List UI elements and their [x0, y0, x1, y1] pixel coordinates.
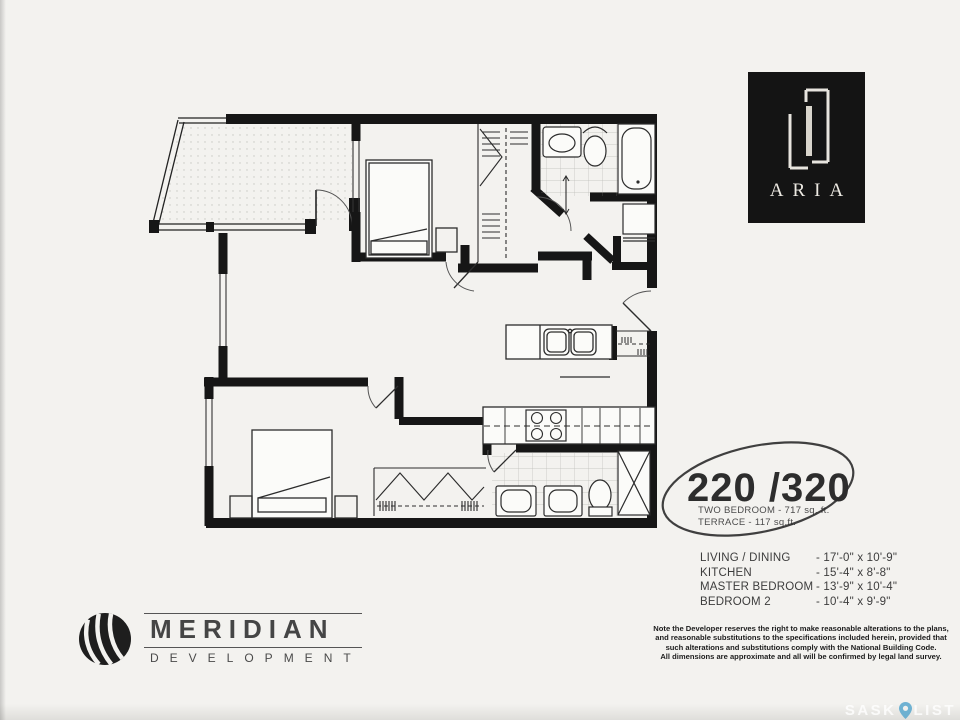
unit-terrace-line: TERRACE - 117 sq.ft. — [698, 517, 796, 528]
exterior-walls — [206, 114, 657, 528]
main-bathroom — [488, 450, 650, 516]
dimension-room: KITCHEN — [700, 567, 816, 579]
location-pin-icon — [899, 702, 912, 719]
watermark-prefix: SASK — [845, 702, 897, 719]
laundry-closet — [623, 204, 655, 241]
dimension-size: - 15'-4" x 8'-8" — [816, 567, 897, 579]
bedroom2-bed — [230, 430, 357, 518]
master-closet — [478, 124, 528, 262]
disclaimer-line: Note the Developer reserves the right to… — [650, 624, 952, 633]
aria-logo-wordmark: ARIA — [761, 180, 852, 202]
disclaimer-line: and reasonable substitutions to the spec… — [650, 633, 952, 642]
dimension-size: - 17'-0" x 10'-9" — [816, 552, 897, 564]
entry-door — [623, 291, 651, 331]
disclaimer-line: such alterations and substitutions compl… — [650, 643, 952, 652]
aria-logo: ARIA — [748, 72, 865, 223]
developer-subtitle: DEVELOPMENT — [144, 651, 362, 665]
dimension-size: - 13'-9" x 10'-4" — [816, 581, 897, 593]
master-bedroom-door — [446, 262, 478, 291]
terrace — [149, 118, 360, 234]
watermark-suffix: LIST — [914, 702, 957, 719]
scan-bottom-shade — [0, 704, 960, 720]
bedroom2-door — [368, 386, 398, 408]
disclaimer-line: All dimensions are approximate and all w… — [650, 652, 952, 661]
coat-closet — [616, 331, 651, 356]
disclaimer: Note the Developer reserves the right to… — [650, 624, 952, 661]
unit-type-line: TWO BEDROOM - 717 sq. ft. — [698, 505, 830, 516]
master-bedroom-bed — [366, 160, 457, 258]
kitchen-counter — [483, 407, 655, 444]
windows — [206, 141, 359, 466]
scan-edge-shadow — [0, 0, 6, 720]
ensuite-bathroom — [537, 124, 655, 231]
dimension-room: LIVING / DINING — [700, 552, 816, 564]
interior-walls — [204, 119, 657, 526]
meridian-globe-icon — [76, 610, 134, 668]
floorplan-sheet: ARIA 220 /320 TWO BEDROOM - 717 sq. ft. … — [0, 0, 960, 720]
dimension-room: BEDROOM 2 — [700, 596, 816, 608]
developer-name: MERIDIAN — [144, 613, 362, 648]
dimension-room: MASTER BEDROOM — [700, 581, 816, 593]
developer-logo: MERIDIAN DEVELOPMENT — [76, 610, 362, 668]
dimension-size: - 10'-4" x 9'-9" — [816, 596, 897, 608]
kitchen-island — [506, 325, 612, 359]
dimension-table: LIVING / DINING - 17'-0" x 10'-9" KITCHE… — [700, 552, 897, 608]
aria-logo-icon — [748, 80, 865, 176]
watermark: SASK LIST — [845, 702, 956, 719]
partition-walls — [399, 188, 657, 421]
bedroom2-closet — [374, 468, 486, 516]
